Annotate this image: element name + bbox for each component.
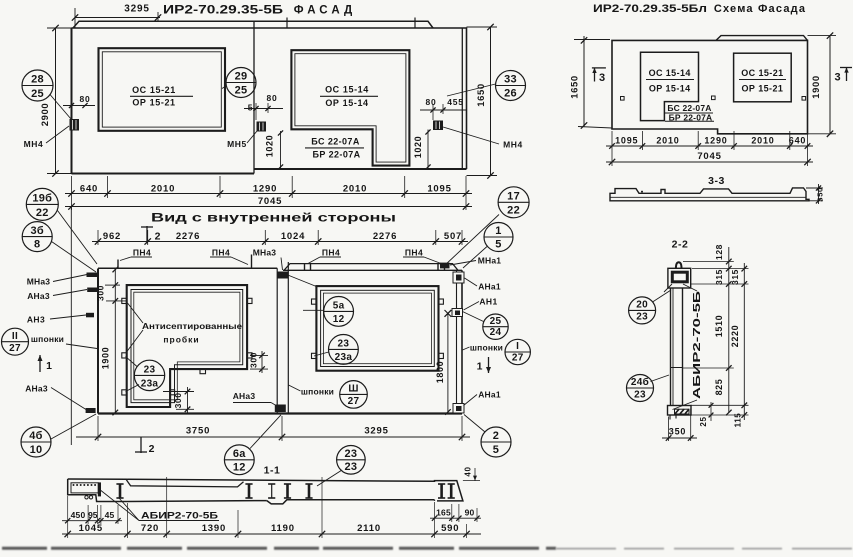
svg-text:I: I — [516, 341, 519, 352]
svg-text:23: 23 — [634, 389, 646, 400]
svg-text:300: 300 — [96, 285, 106, 301]
svg-text:20: 20 — [636, 300, 648, 311]
svg-text:115: 115 — [734, 413, 743, 428]
svg-text:1800: 1800 — [435, 361, 445, 383]
svg-text:27: 27 — [512, 353, 524, 364]
svg-text:2010: 2010 — [151, 184, 175, 195]
svg-text:825: 825 — [714, 379, 724, 396]
svg-text:3750: 3750 — [186, 426, 210, 437]
svg-text:962: 962 — [103, 231, 121, 242]
svg-text:Схема Фасада: Схема Фасада — [714, 3, 806, 15]
svg-text:МН4: МН4 — [24, 139, 44, 149]
svg-text:22: 22 — [36, 207, 49, 219]
svg-text:ОС 15-21: ОС 15-21 — [741, 68, 783, 78]
svg-text:ПН4: ПН4 — [405, 247, 423, 257]
svg-text:24б: 24б — [631, 376, 649, 388]
svg-text:5: 5 — [495, 238, 501, 250]
svg-text:590: 590 — [441, 523, 459, 534]
svg-text:Вид с внутренней стороны: Вид с внутренней стороны — [151, 213, 396, 225]
svg-text:1900: 1900 — [811, 75, 822, 99]
svg-text:ОС 15-14: ОС 15-14 — [649, 68, 691, 78]
svg-text:ОС 15-21: ОС 15-21 — [132, 85, 176, 95]
svg-text:6а: 6а — [233, 448, 246, 460]
svg-text:27: 27 — [9, 343, 21, 354]
svg-text:ОР 15-21: ОР 15-21 — [132, 98, 175, 108]
svg-text:2-2: 2-2 — [672, 239, 689, 251]
svg-text:7045: 7045 — [697, 151, 721, 162]
svg-text:2010: 2010 — [656, 136, 679, 146]
svg-text:АНа1: АНа1 — [478, 390, 501, 400]
svg-text:28: 28 — [31, 74, 44, 86]
svg-text:II: II — [12, 331, 18, 342]
svg-text:350: 350 — [816, 187, 825, 201]
svg-text:4б: 4б — [29, 430, 43, 442]
svg-text:128: 128 — [714, 244, 724, 260]
svg-text:23: 23 — [636, 312, 648, 323]
svg-text:ОР 15-14: ОР 15-14 — [649, 84, 691, 94]
svg-text:1510: 1510 — [714, 315, 724, 337]
svg-text:80: 80 — [266, 93, 277, 103]
svg-text:300: 300 — [173, 392, 183, 408]
svg-text:ОР 15-21: ОР 15-21 — [742, 84, 784, 94]
svg-text:шпонки: шпонки — [470, 342, 503, 352]
svg-text:АНа3: АНа3 — [25, 384, 48, 394]
svg-text:80: 80 — [79, 94, 90, 104]
svg-text:АНа3: АНа3 — [27, 291, 50, 301]
svg-text:АНа3: АНа3 — [233, 391, 256, 401]
svg-text:МН4: МН4 — [503, 140, 523, 150]
svg-text:23: 23 — [344, 461, 357, 473]
svg-text:450: 450 — [71, 510, 86, 520]
svg-text:12: 12 — [333, 314, 345, 325]
svg-text:315: 315 — [730, 269, 740, 285]
svg-text:1024: 1024 — [281, 231, 305, 242]
svg-text:10: 10 — [30, 444, 43, 456]
svg-text:1-1: 1-1 — [264, 465, 281, 477]
svg-text:29: 29 — [235, 71, 248, 83]
svg-text:3295: 3295 — [124, 4, 149, 15]
svg-text:2010: 2010 — [343, 184, 367, 195]
svg-text:ИР2-70.29.35-5Б: ИР2-70.29.35-5Б — [163, 5, 283, 17]
svg-text:23: 23 — [144, 365, 156, 376]
svg-text:23: 23 — [344, 448, 357, 460]
svg-text:165: 165 — [436, 507, 451, 517]
svg-text:26: 26 — [504, 87, 517, 99]
svg-text:1650: 1650 — [476, 83, 487, 107]
svg-text:25: 25 — [490, 316, 502, 327]
svg-text:шпонки: шпонки — [301, 386, 334, 396]
svg-text:23а: 23а — [141, 378, 159, 389]
svg-text:90: 90 — [465, 507, 475, 517]
svg-text:95: 95 — [88, 510, 98, 520]
svg-text:24: 24 — [490, 327, 502, 338]
svg-text:1: 1 — [477, 361, 484, 373]
svg-text:1390: 1390 — [202, 523, 226, 534]
svg-text:5: 5 — [493, 444, 499, 456]
svg-text:507: 507 — [444, 231, 462, 242]
svg-text:1045: 1045 — [79, 523, 103, 534]
svg-text:640: 640 — [80, 184, 98, 195]
svg-text:22: 22 — [507, 205, 520, 217]
svg-text:2: 2 — [155, 231, 162, 243]
svg-text:25: 25 — [235, 84, 248, 96]
svg-text:МН5: МН5 — [227, 139, 247, 149]
svg-text:1095: 1095 — [427, 184, 451, 195]
svg-text:5: 5 — [248, 103, 254, 113]
svg-text:1020: 1020 — [413, 136, 423, 158]
svg-text:455: 455 — [447, 97, 464, 107]
svg-text:5а: 5а — [333, 301, 345, 312]
svg-text:3: 3 — [599, 72, 606, 84]
svg-text:ОС 15-14: ОС 15-14 — [325, 85, 369, 95]
svg-text:1095: 1095 — [615, 136, 638, 146]
svg-text:АН1: АН1 — [479, 297, 497, 307]
svg-text:МНа3: МНа3 — [27, 277, 51, 287]
svg-text:1: 1 — [46, 360, 53, 372]
svg-text:пробки: пробки — [163, 335, 199, 345]
svg-text:2010: 2010 — [751, 136, 774, 146]
svg-text:ПН4: ПН4 — [133, 248, 151, 258]
svg-text:2220: 2220 — [730, 325, 740, 347]
svg-text:АБИР2-70-5Б: АБИР2-70-5Б — [141, 511, 218, 522]
svg-text:АНа1: АНа1 — [478, 282, 501, 292]
svg-text:2110: 2110 — [357, 523, 381, 534]
svg-text:12: 12 — [233, 462, 246, 474]
svg-text:1900: 1900 — [101, 347, 111, 369]
svg-text:640: 640 — [789, 136, 806, 146]
svg-text:23а: 23а — [335, 352, 353, 363]
svg-text:ПН4: ПН4 — [212, 248, 230, 258]
svg-text:8: 8 — [34, 238, 40, 250]
svg-text:3: 3 — [835, 72, 842, 84]
svg-text:2276: 2276 — [373, 231, 397, 242]
svg-text:АБИР2-70-5Б: АБИР2-70-5Б — [692, 291, 703, 399]
svg-text:2900: 2900 — [40, 103, 51, 127]
svg-text:720: 720 — [141, 523, 159, 534]
svg-text:2: 2 — [493, 430, 499, 442]
svg-text:1020: 1020 — [265, 135, 275, 157]
svg-text:19б: 19б — [32, 193, 52, 205]
svg-text:1290: 1290 — [704, 136, 727, 146]
svg-text:МНа1: МНа1 — [478, 256, 502, 266]
svg-text:315: 315 — [714, 269, 724, 285]
svg-text:МНа3: МНа3 — [253, 247, 277, 257]
svg-text:1190: 1190 — [271, 523, 295, 534]
svg-text:2: 2 — [149, 443, 156, 455]
svg-text:25: 25 — [699, 416, 708, 426]
svg-text:шпонки: шпонки — [31, 334, 64, 344]
svg-text:3б: 3б — [30, 225, 44, 237]
svg-text:80: 80 — [425, 97, 436, 107]
svg-text:ИР2-70.29.35-5Бл: ИР2-70.29.35-5Бл — [593, 3, 707, 15]
svg-text:1650: 1650 — [570, 75, 581, 99]
svg-text:350: 350 — [669, 427, 686, 437]
svg-text:3295: 3295 — [364, 426, 388, 437]
svg-text:БР 22-07А: БР 22-07А — [312, 150, 360, 160]
svg-text:Антисептированные: Антисептированные — [142, 321, 242, 331]
svg-text:ПН4: ПН4 — [322, 248, 340, 258]
svg-text:25: 25 — [31, 88, 44, 100]
svg-text:45: 45 — [105, 510, 115, 520]
svg-text:1: 1 — [495, 225, 501, 237]
svg-text:7045: 7045 — [258, 196, 282, 207]
svg-text:АН3: АН3 — [27, 315, 45, 325]
svg-text:3-3: 3-3 — [708, 175, 725, 187]
svg-text:17: 17 — [507, 191, 520, 203]
svg-text:Ш: Ш — [348, 384, 358, 395]
svg-text:ОР 15-14: ОР 15-14 — [325, 98, 368, 108]
svg-text:40: 40 — [464, 466, 473, 476]
svg-text:300: 300 — [249, 352, 259, 368]
svg-text:23: 23 — [338, 339, 350, 350]
svg-text:2276: 2276 — [176, 231, 200, 242]
svg-text:ФАСАД: ФАСАД — [294, 5, 357, 17]
svg-text:БС 22-07А: БС 22-07А — [311, 137, 360, 147]
svg-text:27: 27 — [348, 396, 360, 407]
svg-text:33: 33 — [504, 74, 517, 86]
svg-text:1290: 1290 — [253, 184, 277, 195]
